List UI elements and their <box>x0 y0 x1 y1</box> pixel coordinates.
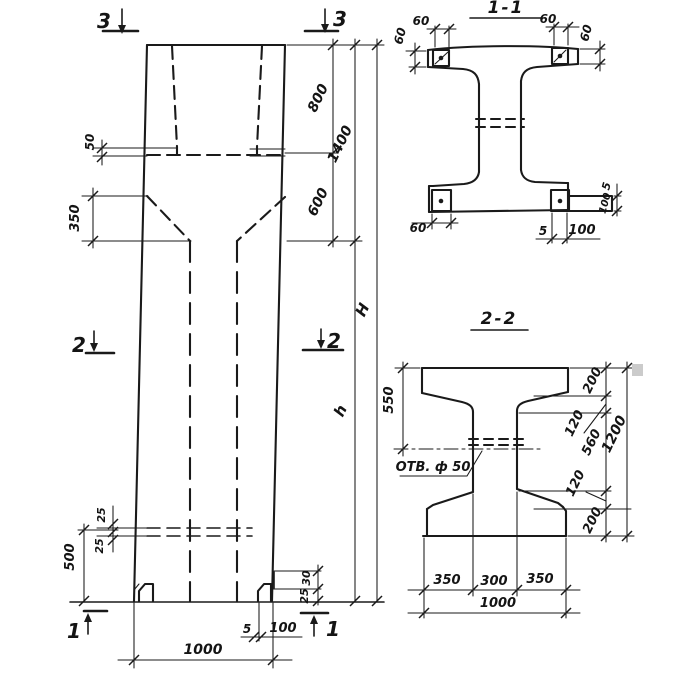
section-2-2: 2-2 ОТВ. ф 50 <box>382 309 643 618</box>
elevation-view: 50 350 25 25 500 800 600 1400 h H 1000 5… <box>63 7 384 668</box>
dim-60-left-label: 60 <box>391 26 409 46</box>
hole-callout: ОТВ. ф 50 <box>396 451 482 476</box>
engineering-drawing: 50 350 25 25 500 800 600 1400 h H 1000 5… <box>0 0 700 700</box>
dim-350-left-label: 350 <box>433 573 460 588</box>
section-marker-2-right: 2 <box>303 329 343 353</box>
section-1-1-outline <box>428 46 612 212</box>
scan-artifact-square <box>632 364 643 376</box>
dim-5-right-label: 5 <box>599 180 614 191</box>
dim-1000-bottom-label: 1000 <box>480 596 516 611</box>
dim-1000-label: 1000 <box>184 642 223 658</box>
marker-2-left-label: 2 <box>72 333 86 357</box>
section-1-1-embed-plates <box>432 48 569 211</box>
left-foot <box>139 584 153 601</box>
marker-3-right-label: 3 <box>333 7 347 31</box>
arrow-up-icon <box>310 615 318 624</box>
marker-3-left-label: 3 <box>97 9 111 33</box>
dim-30-label: 30 <box>300 570 313 586</box>
dim-350-label: 350 <box>68 204 83 231</box>
section-marker-1-right: 1 <box>301 613 340 641</box>
section-marker-1-left: 1 <box>67 611 107 643</box>
dim-800-label: 800 <box>305 81 332 115</box>
marker-1-left-label: 1 <box>67 619 81 643</box>
dim-200-top-label: 200 <box>580 365 605 396</box>
arrow-down-icon <box>317 340 325 349</box>
section-1-1: 1-1 <box>391 0 622 244</box>
dim-100-bottom-label: 100 <box>568 223 595 238</box>
arrow-up-icon <box>84 613 92 622</box>
dim-60-top-left-label: 60 <box>413 14 430 28</box>
dim-60-top-right-label: 60 <box>540 12 557 26</box>
elevation-outline <box>70 45 384 602</box>
section-marker-3-right: 3 <box>305 7 347 33</box>
dim-25-lower-label: 25 <box>93 538 106 554</box>
arrow-down-icon <box>90 343 98 352</box>
dim-25-upper-label: 25 <box>95 507 108 523</box>
dim-25-foot-label: 25 <box>298 588 311 604</box>
drawing-sheet: 50 350 25 25 500 800 600 1400 h H 1000 5… <box>0 0 700 700</box>
hole-label: ОТВ. ф 50 <box>396 460 471 475</box>
section-marker-2-left: 2 <box>72 331 114 357</box>
dim-600-label: 600 <box>305 185 332 219</box>
dim-5-label: 5 <box>243 622 251 636</box>
section-1-1-title: 1-1 <box>488 0 525 18</box>
section-2-2-dim-lines <box>395 362 634 618</box>
arrow-down-icon <box>118 25 126 34</box>
dim-60-right-label: 60 <box>577 23 595 43</box>
dim-500-label: 500 <box>63 543 78 570</box>
dim-5-bottom-label: 5 <box>539 224 547 238</box>
dim-350-right-label: 350 <box>526 572 553 587</box>
right-foot <box>258 584 271 601</box>
dim-1400-label: 1400 <box>325 123 357 165</box>
dim-50-label: 50 <box>83 134 97 151</box>
section-marker-3-left: 3 <box>97 9 138 34</box>
dim-h-label: h <box>330 402 351 419</box>
dim-120-bottom-label: 120 <box>563 468 588 499</box>
section-2-2-title: 2-2 <box>481 309 518 329</box>
marker-1-right-label: 1 <box>326 617 340 641</box>
dim-300-label: 300 <box>480 574 507 589</box>
dim-550-label: 550 <box>382 386 397 413</box>
marker-2-right-label: 2 <box>327 329 341 353</box>
elevation-hidden-lines <box>147 46 285 601</box>
dim-200-bottom-label: 200 <box>580 505 605 536</box>
dim-60-bottom-label: 60 <box>410 221 427 235</box>
dim-100-label: 100 <box>269 621 296 636</box>
